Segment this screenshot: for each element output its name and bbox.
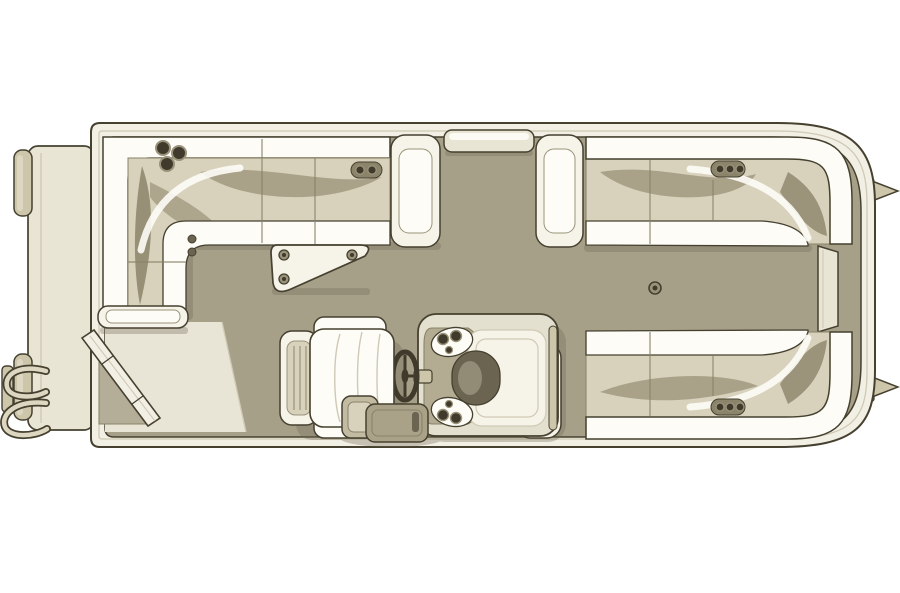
steering-wheel-hub — [402, 369, 409, 383]
cup-holder-br-2 — [726, 403, 734, 411]
table-mount-center — [653, 286, 658, 291]
cup-holder-br-3 — [736, 403, 744, 411]
gauge-top-2 — [451, 331, 462, 342]
cup-holder-tr-2 — [726, 165, 734, 173]
cup-holder-tr-1 — [716, 165, 724, 173]
pontoon-nose-cone-top — [872, 181, 898, 201]
gauge-bottom-2 — [451, 413, 462, 424]
pontoon-floorplan-canvas — [0, 0, 900, 593]
gauge-bottom-1 — [438, 410, 449, 421]
pontoon-nose-cone-bottom — [872, 377, 898, 397]
cup-holder-br-1 — [716, 403, 724, 411]
table-bolt-3-center — [282, 277, 286, 281]
top-gate-highlight — [449, 133, 529, 140]
top-gate-group — [444, 130, 534, 152]
floorplan-svg — [0, 0, 900, 593]
gauge-bottom-3 — [446, 401, 453, 408]
console-helm-pod-inner — [458, 361, 482, 395]
side-bow-gate — [818, 246, 838, 332]
table-bolt-2-center — [350, 253, 354, 257]
corner-speaker-1 — [156, 141, 170, 155]
corner-speaker-2 — [172, 146, 186, 160]
chair-backrest-cushion — [287, 341, 311, 415]
pontoon-end-cap-top-highlight — [17, 155, 23, 211]
top-right-lounge — [536, 135, 852, 247]
lounge-br-front-roll — [586, 330, 808, 355]
entry-gate-latch — [412, 412, 419, 432]
lounge-tl-armrest-cushion — [399, 149, 432, 233]
gauge-top-3 — [446, 347, 453, 354]
console-windscreen — [549, 326, 557, 430]
stern-entry-group — [82, 322, 246, 432]
side-bow-gate-group — [818, 246, 838, 332]
table-bolt-1-center — [282, 253, 286, 257]
corner-speaker-3 — [160, 157, 174, 171]
lounge-tr-front-roll — [586, 221, 808, 246]
swim-platform — [28, 146, 94, 430]
cup-holder-tl-2 — [368, 166, 376, 174]
cup-holder-tr-3 — [736, 165, 744, 173]
gauge-top-1 — [438, 334, 449, 345]
cup-holder-tl-1 — [356, 166, 364, 174]
floor-fitting-1 — [188, 235, 196, 243]
swim-platform-group — [2, 146, 94, 435]
lounge-tr-armrest-cushion — [544, 149, 575, 233]
floor-fitting-2 — [188, 248, 196, 256]
lounge-tl-end-cap-cushion — [106, 310, 180, 323]
